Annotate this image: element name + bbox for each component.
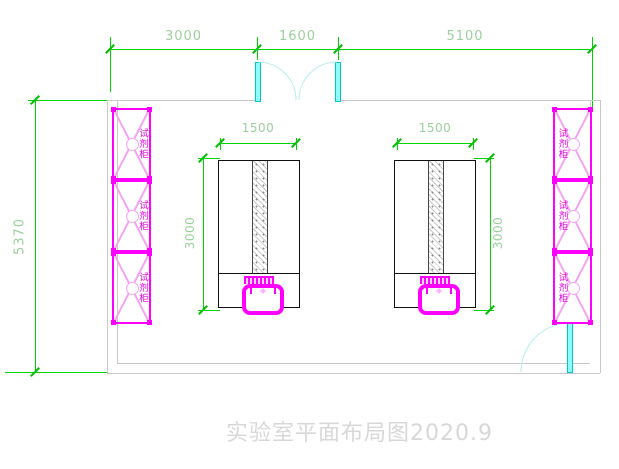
sink-basin bbox=[242, 284, 284, 315]
wall-left-outer bbox=[107, 100, 108, 373]
cabinet-corner bbox=[147, 320, 152, 325]
bench-left-width-dim-line bbox=[220, 143, 296, 144]
wall-top-right-segment bbox=[338, 100, 600, 101]
cabinet-corner bbox=[552, 251, 557, 256]
sink-grille bbox=[244, 276, 274, 284]
faucet-tick bbox=[274, 288, 276, 294]
double-door-right-leaf bbox=[335, 62, 341, 102]
door-swing-arcs bbox=[0, 0, 619, 469]
top-dimension-line bbox=[110, 49, 592, 50]
cabinet-corner bbox=[111, 179, 116, 184]
faucet-tick bbox=[426, 288, 428, 294]
bench-left-height-dim-line bbox=[203, 158, 204, 310]
reagent-cabinet: 试剂柜 bbox=[553, 108, 592, 180]
door-arc-left bbox=[258, 62, 296, 100]
cabinet-label: 试剂柜 bbox=[138, 200, 148, 232]
cabinet-label: 试剂柜 bbox=[138, 272, 148, 304]
cabinet-corner bbox=[552, 107, 557, 112]
floor-plan-canvas: 3000 1600 5100 5370 试剂柜 试剂柜 试剂柜 bbox=[0, 0, 619, 469]
bench-divider bbox=[395, 273, 475, 274]
cabinet-corner bbox=[552, 179, 557, 184]
sink-basin bbox=[418, 284, 460, 315]
lab-bench-left bbox=[218, 160, 300, 308]
door-arc-bottom-right bbox=[521, 323, 570, 372]
cabinet-knob bbox=[567, 282, 580, 295]
dim-left-height: 5370 bbox=[14, 209, 27, 265]
cabinet-label: 试剂柜 bbox=[557, 272, 567, 304]
bench-divider bbox=[219, 273, 299, 274]
dim-top-middle: 1600 bbox=[257, 30, 338, 43]
dim-bench-right-width: 1500 bbox=[397, 122, 473, 134]
faucet-tick bbox=[450, 288, 452, 294]
reagent-cabinet: 试剂柜 bbox=[112, 252, 151, 324]
wall-bottom-outer bbox=[107, 373, 600, 374]
reagent-cabinet: 试剂柜 bbox=[112, 108, 151, 180]
cabinet-corner bbox=[111, 251, 116, 256]
reagent-cabinet: 试剂柜 bbox=[553, 252, 592, 324]
cabinet-corner bbox=[147, 107, 152, 112]
cabinet-corner bbox=[147, 251, 152, 256]
cabinet-label: 试剂柜 bbox=[557, 200, 567, 232]
left-ext-line-bottom bbox=[5, 372, 107, 373]
reagent-cabinet: 试剂柜 bbox=[112, 180, 151, 252]
cabinet-corner bbox=[111, 320, 116, 325]
cabinet-corner bbox=[588, 107, 593, 112]
dim-bench-left-width: 1500 bbox=[220, 122, 296, 134]
faucet-tick bbox=[250, 288, 252, 294]
drain-mark bbox=[260, 288, 266, 294]
door-arc-right bbox=[299, 62, 337, 100]
left-ext-line-top bbox=[28, 100, 107, 101]
wall-top-left-segment bbox=[107, 100, 258, 101]
reagent-cabinet: 试剂柜 bbox=[553, 180, 592, 252]
wall-bottom-inner bbox=[117, 363, 590, 364]
single-door-leaf bbox=[567, 323, 573, 373]
cabinet-corner bbox=[111, 107, 116, 112]
drawing-title: 实验室平面布局图2020.9 bbox=[226, 421, 493, 447]
double-door-left-leaf bbox=[255, 62, 261, 102]
bench-hatch-column bbox=[428, 161, 444, 273]
cabinet-knob bbox=[567, 138, 580, 151]
cabinet-corner bbox=[588, 179, 593, 184]
cabinet-corner bbox=[588, 251, 593, 256]
lab-bench-right bbox=[394, 160, 476, 308]
cabinet-knob bbox=[567, 210, 580, 223]
cabinet-corner bbox=[588, 320, 593, 325]
sink-grille bbox=[420, 276, 450, 284]
left-dimension-line bbox=[35, 100, 36, 373]
bench-hatch-column bbox=[252, 161, 268, 273]
dim-bench-right-height: 3000 bbox=[492, 205, 504, 261]
cabinet-corner bbox=[552, 320, 557, 325]
dim-top-right: 5100 bbox=[338, 30, 592, 43]
dim-top-left: 3000 bbox=[110, 30, 257, 43]
wall-right-outer bbox=[600, 100, 601, 373]
bench-right-width-dim-line bbox=[397, 143, 473, 144]
cabinet-label: 试剂柜 bbox=[557, 128, 567, 160]
cabinet-corner bbox=[147, 179, 152, 184]
dim-bench-left-height: 3000 bbox=[184, 205, 196, 261]
cabinet-label: 试剂柜 bbox=[138, 128, 148, 160]
drain-mark bbox=[436, 288, 442, 294]
